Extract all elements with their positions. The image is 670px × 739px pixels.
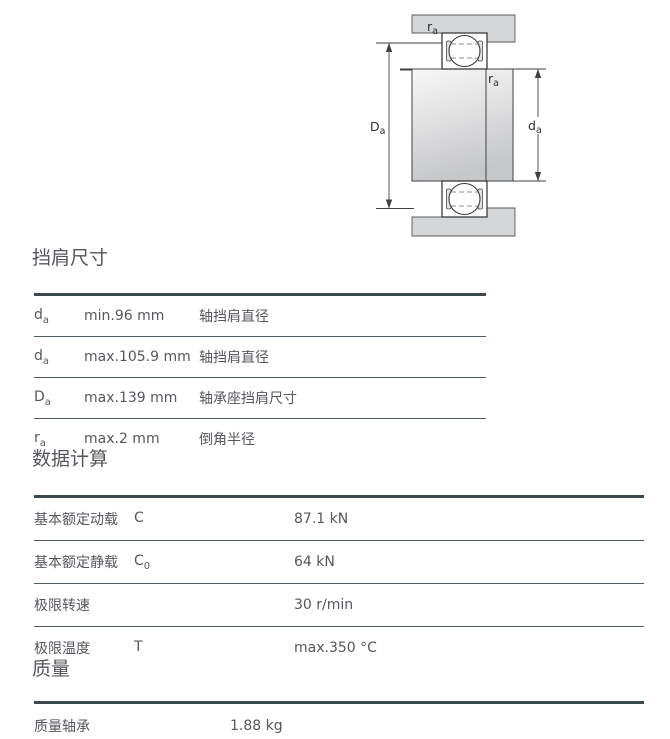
property-label: 基本额定动载 [34, 509, 134, 529]
property-value: max.350 °C [294, 640, 644, 656]
dimension-description: 轴挡肩直径 [199, 347, 486, 367]
property-label: 极限温度 [34, 638, 134, 658]
section-title-shoulder-dimensions: 挡肩尺寸 [32, 247, 108, 270]
section-title-mass: 质量 [32, 658, 70, 681]
bearing-top [442, 33, 487, 69]
dimension-value: max.2 mm [84, 431, 199, 447]
dimension-symbol: ra [34, 430, 84, 449]
property-symbol: T [134, 639, 294, 658]
ball-top [449, 36, 480, 67]
dimension-value: max.105.9 mm [84, 349, 199, 365]
property-value: 64 kN [294, 554, 644, 570]
table-row: da max.105.9 mm 轴挡肩直径 [34, 337, 486, 378]
property-label: 基本额定静载 [34, 552, 134, 572]
property-symbol: C [134, 510, 294, 529]
arrow-down-icon [535, 172, 541, 181]
property-label: 极限转速 [34, 595, 134, 615]
table-row: 基本额定静载 C0 64 kN [34, 541, 644, 584]
table-row: 极限温度 T max.350 °C [34, 627, 644, 669]
table-row: 极限转速 30 r/min [34, 584, 644, 627]
mass-table: 质量轴承 1.88 kg [34, 701, 644, 739]
table-row: da min.96 mm 轴挡肩直径 [34, 296, 486, 337]
table-row: 基本额定动载 C 87.1 kN [34, 498, 644, 541]
property-label: 质量轴承 [34, 716, 230, 736]
property-value: 30 r/min [294, 597, 644, 613]
arrow-up-icon [386, 43, 392, 52]
dimension-symbol: da [34, 348, 84, 367]
property-symbol: C0 [134, 553, 294, 572]
dimension-value: max.139 mm [84, 390, 199, 406]
calculation-data-table: 基本额定动载 C 87.1 kN 基本额定静载 C0 64 kN 极限转速 30… [34, 495, 644, 669]
ball-bottom [449, 184, 480, 215]
arrow-down-icon [386, 200, 392, 209]
bearing-spec-page: Da da ra ra 挡肩尺寸 da min.96 mm 轴挡肩直径 da m… [0, 0, 670, 739]
arrow-up-icon [535, 69, 541, 78]
dimension-symbol: da [34, 307, 84, 326]
dimension-description: 轴承座挡肩尺寸 [199, 388, 486, 408]
property-value: 1.88 kg [230, 718, 644, 734]
label-da: da [528, 118, 542, 136]
section-title-calculation-data: 数据计算 [32, 448, 108, 471]
shoulder-dimensions-table: da min.96 mm 轴挡肩直径 da max.105.9 mm 轴挡肩直径… [34, 293, 486, 459]
label-Da: Da [370, 119, 385, 137]
dimension-description: 轴挡肩直径 [199, 306, 486, 326]
bearing-bottom [442, 181, 487, 217]
dimension-value: min.96 mm [84, 308, 199, 324]
property-value: 87.1 kN [294, 511, 644, 527]
bearing-cross-section-diagram: Da da ra ra [370, 0, 670, 240]
dimension-description: 倒角半径 [199, 429, 486, 449]
table-row: Da max.139 mm 轴承座挡肩尺寸 [34, 378, 486, 419]
dimension-symbol: Da [34, 389, 84, 408]
table-row: 质量轴承 1.88 kg [34, 704, 644, 739]
